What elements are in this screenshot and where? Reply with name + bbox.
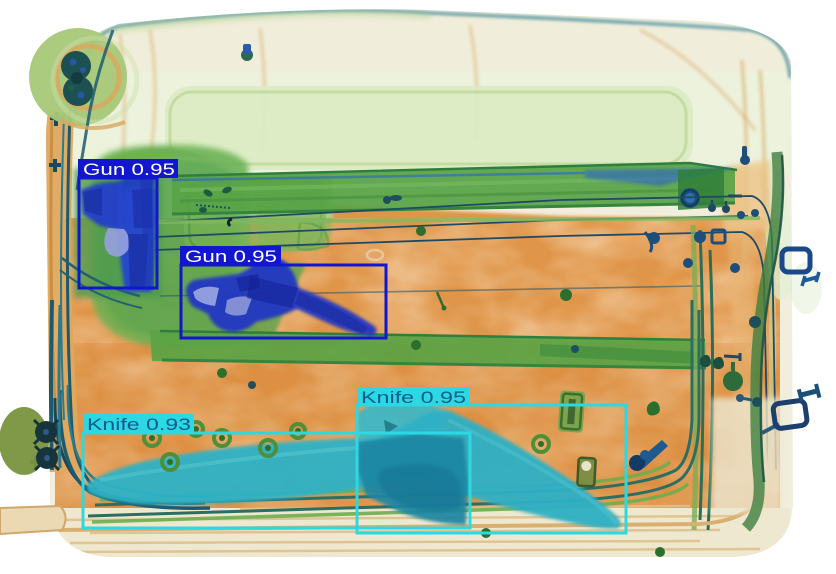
svg-text:Gun 0.95: Gun 0.95 bbox=[83, 160, 175, 179]
svg-text:Knife 0.93: Knife 0.93 bbox=[87, 415, 191, 434]
svg-text:Knife 0.95: Knife 0.95 bbox=[361, 388, 466, 407]
svg-text:Gun 0.95: Gun 0.95 bbox=[185, 247, 277, 266]
